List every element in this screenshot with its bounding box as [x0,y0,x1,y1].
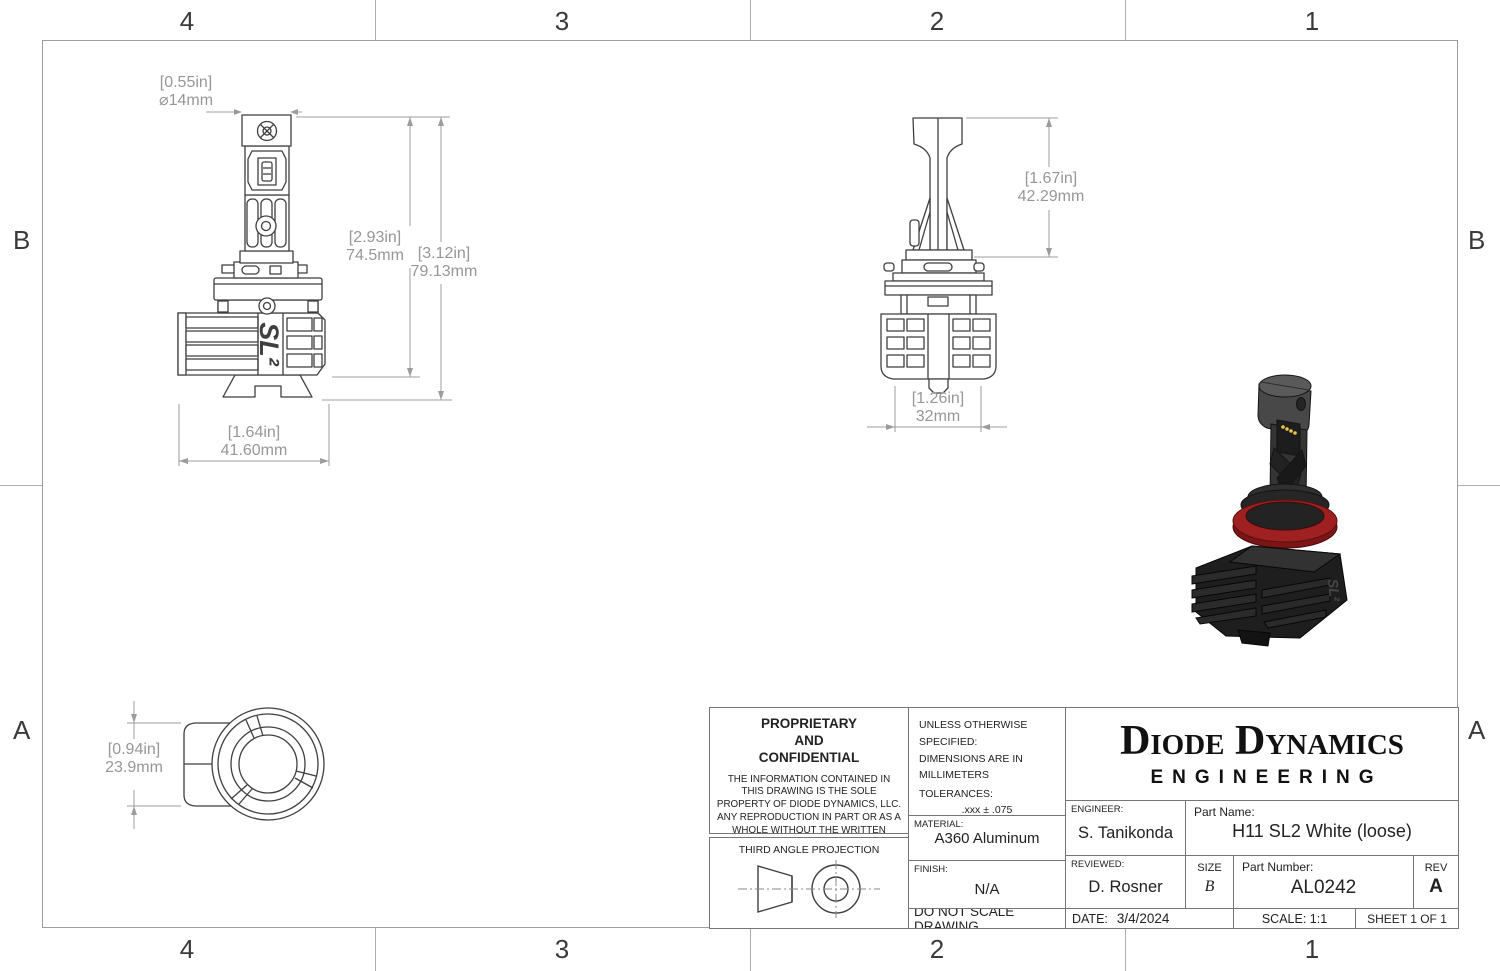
title-block-logo: Diode Dynamics ENGINEERING [1065,707,1459,801]
title-block-date: DATE: 3/4/2024 [1065,908,1234,929]
reviewed-value: D. Rosner [1066,870,1185,897]
zone-label-top-2: 2 [930,6,944,37]
material-label: MATERIAL: [909,816,1065,830]
title-block-scale: SCALE: 1:1 [1233,908,1356,929]
title-block-engineer: ENGINEER: S. Tanikonda [1065,800,1186,856]
drawing-sheet: { "colors": { "accent_red": "#9e2020", "… [0,0,1500,971]
part-number-label: Part Number: [1234,856,1413,874]
title-block-proprietary: PROPRIETARY AND CONFIDENTIAL THE INFORMA… [709,707,909,834]
zone-tick-bottom-2 [750,928,751,971]
dimension-bottom-height: [0.94in] 23.9mm [97,741,171,777]
zone-label-top-1: 1 [1305,6,1319,37]
zone-label-left-a: A [13,715,30,746]
zone-label-bottom-2: 2 [930,934,944,965]
spec-line1: UNLESS OTHERWISE SPECIFIED: [919,717,1065,751]
dim-value-in: [1.67in] [1005,170,1097,188]
sheet-text: SHEET 1 OF 1 [1367,912,1447,926]
dim-value-in: [1.26in] [893,390,983,408]
size-label: SIZE [1186,856,1233,874]
scale-text: SCALE: 1:1 [1262,912,1327,926]
zone-tick-bottom-3 [1125,928,1126,971]
zone-label-bottom-1: 1 [1305,934,1319,965]
dim-value-mm: 23.9mm [97,759,171,777]
rev-value: A [1414,874,1458,898]
spec-line2: DIMENSIONS ARE IN MILLIMETERS [919,751,1065,785]
engineer-value: S. Tanikonda [1066,815,1185,843]
part-name-value: H11 SL2 White (loose) [1186,819,1458,842]
zone-label-right-b: B [1468,225,1485,256]
dim-value-in: [3.12in] [398,245,490,263]
dim-value-in: [0.94in] [97,741,171,759]
dimension-side-width: [1.26in] 32mm [893,390,983,426]
tolerances-label: TOLERANCES: [909,784,1065,801]
title-block-material: MATERIAL: A360 Aluminum [908,815,1066,861]
dimension-front-diameter: [0.55in] ⌀14mm [148,74,224,110]
zone-label-bottom-4: 4 [180,934,194,965]
title-block-third-angle: THIRD ANGLE PROJECTION [709,837,909,929]
date-label: DATE: [1072,912,1108,926]
title-block-rev: REV A [1413,855,1459,909]
title-block-specs: UNLESS OTHERWISE SPECIFIED: DIMENSIONS A… [908,707,1066,816]
dimension-front-width: [1.64in] 41.60mm [208,424,300,460]
dim-value-mm: 79.13mm [398,263,490,281]
zone-label-right-a: A [1468,715,1485,746]
date-value: 3/4/2024 [1117,911,1170,926]
finish-value: N/A [909,875,1065,898]
title-block-reviewed: REVIEWED: D. Rosner [1065,855,1186,909]
proprietary-title: PROPRIETARY AND CONFIDENTIAL [710,708,908,767]
do-not-scale-text: DO NOT SCALE DRAWING [914,908,1065,929]
dim-value-in: [1.64in] [208,424,300,442]
title-block-part-name: Part Name: H11 SL2 White (loose) [1185,800,1459,856]
zone-tick-top-2 [750,0,751,40]
dim-value-mm: ⌀14mm [148,92,224,110]
finish-label: FINISH: [909,861,1065,875]
dim-value-mm: 42.29mm [1005,188,1097,206]
dimension-side-upper-height: [1.67in] 42.29mm [1005,170,1097,206]
part-name-label: Part Name: [1186,801,1458,819]
zone-label-top-3: 3 [555,6,569,37]
title-block-sheet: SHEET 1 OF 1 [1355,908,1459,929]
third-angle-projection-icon [710,858,908,920]
reviewed-label: REVIEWED: [1066,856,1185,870]
zone-label-top-4: 4 [180,6,194,37]
company-logo-sub: ENGINEERING [1066,762,1458,789]
zone-tick-right [1458,485,1500,486]
dimension-front-total-height: [3.12in] 79.13mm [398,245,490,281]
dim-value-in: [0.55in] [148,74,224,92]
title-block-do-not-scale: DO NOT SCALE DRAWING [908,908,1066,929]
proprietary-body: THE INFORMATION CONTAINED IN THIS DRAWIN… [710,767,908,834]
third-angle-label: THIRD ANGLE PROJECTION [710,838,908,856]
company-logo: Diode Dynamics [1066,708,1458,762]
part-number-value: AL0242 [1234,874,1413,899]
size-value: B [1186,874,1233,896]
rev-label: REV [1414,856,1458,874]
zone-label-bottom-3: 3 [555,934,569,965]
dim-value-mm: 41.60mm [208,442,300,460]
zone-tick-left [0,485,42,486]
zone-tick-top-3 [1125,0,1126,40]
zone-tick-top-1 [375,0,376,40]
material-value: A360 Aluminum [909,830,1065,847]
title-block-size: SIZE B [1185,855,1234,909]
title-block-finish: FINISH: N/A [908,860,1066,909]
zone-tick-bottom-1 [375,928,376,971]
dim-value-mm: 32mm [893,408,983,426]
title-block-part-number: Part Number: AL0242 [1233,855,1414,909]
engineer-label: ENGINEER: [1066,801,1185,815]
zone-label-left-b: B [13,225,30,256]
